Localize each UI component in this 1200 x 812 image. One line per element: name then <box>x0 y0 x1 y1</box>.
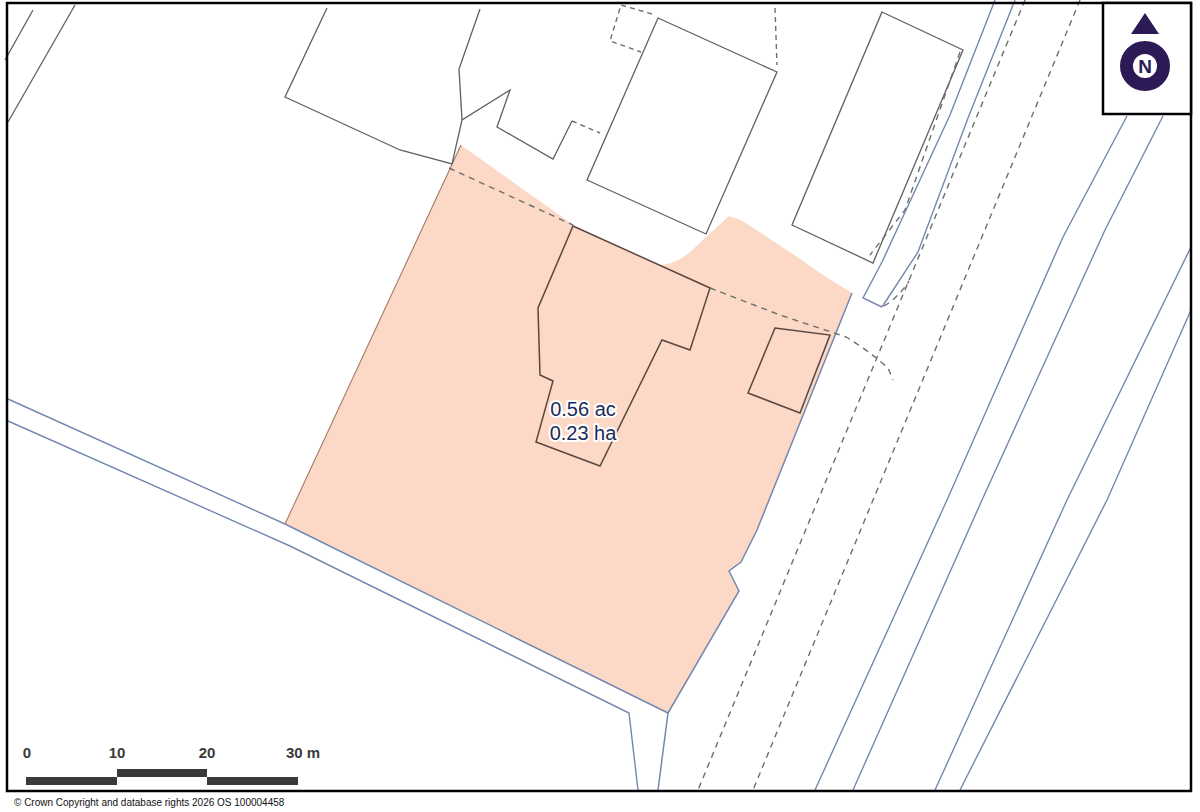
site-plan-map: 0.56 ac 0.23 ha N 0 10 20 30 m © Crown C… <box>0 0 1200 812</box>
copyright-text: © Crown Copyright and database rights 20… <box>14 797 285 808</box>
field-boundary-line <box>5 10 33 60</box>
scale-tick-10: 10 <box>109 744 126 761</box>
dashed-alley-line <box>775 8 777 65</box>
road-kerb-east-4 <box>960 310 1191 790</box>
area-acres-text: 0.56 ac <box>550 398 616 420</box>
scale-segment <box>117 769 207 777</box>
large-building-northeast <box>792 12 963 263</box>
neighbour-building-edge <box>459 9 480 120</box>
road-kerb-west-upper <box>8 399 285 524</box>
north-letter: N <box>1138 56 1152 77</box>
scale-segment <box>207 777 298 785</box>
scale-bar: 0 10 20 30 m <box>23 744 320 785</box>
area-hectares-text: 0.23 ha <box>550 422 618 444</box>
scale-tick-0: 0 <box>23 744 31 761</box>
scale-tick-30m: 30 m <box>286 744 320 761</box>
north-compass: N <box>1103 3 1191 114</box>
map-canvas: 0.56 ac 0.23 ha N 0 10 20 30 m © Crown C… <box>0 0 1200 812</box>
scale-tick-20: 20 <box>199 744 216 761</box>
scale-segment <box>26 777 117 785</box>
dashed-link-line <box>572 121 600 133</box>
large-building-north <box>587 18 777 234</box>
field-boundary-line <box>8 5 75 122</box>
neighbour-buildings-outline <box>285 8 572 164</box>
